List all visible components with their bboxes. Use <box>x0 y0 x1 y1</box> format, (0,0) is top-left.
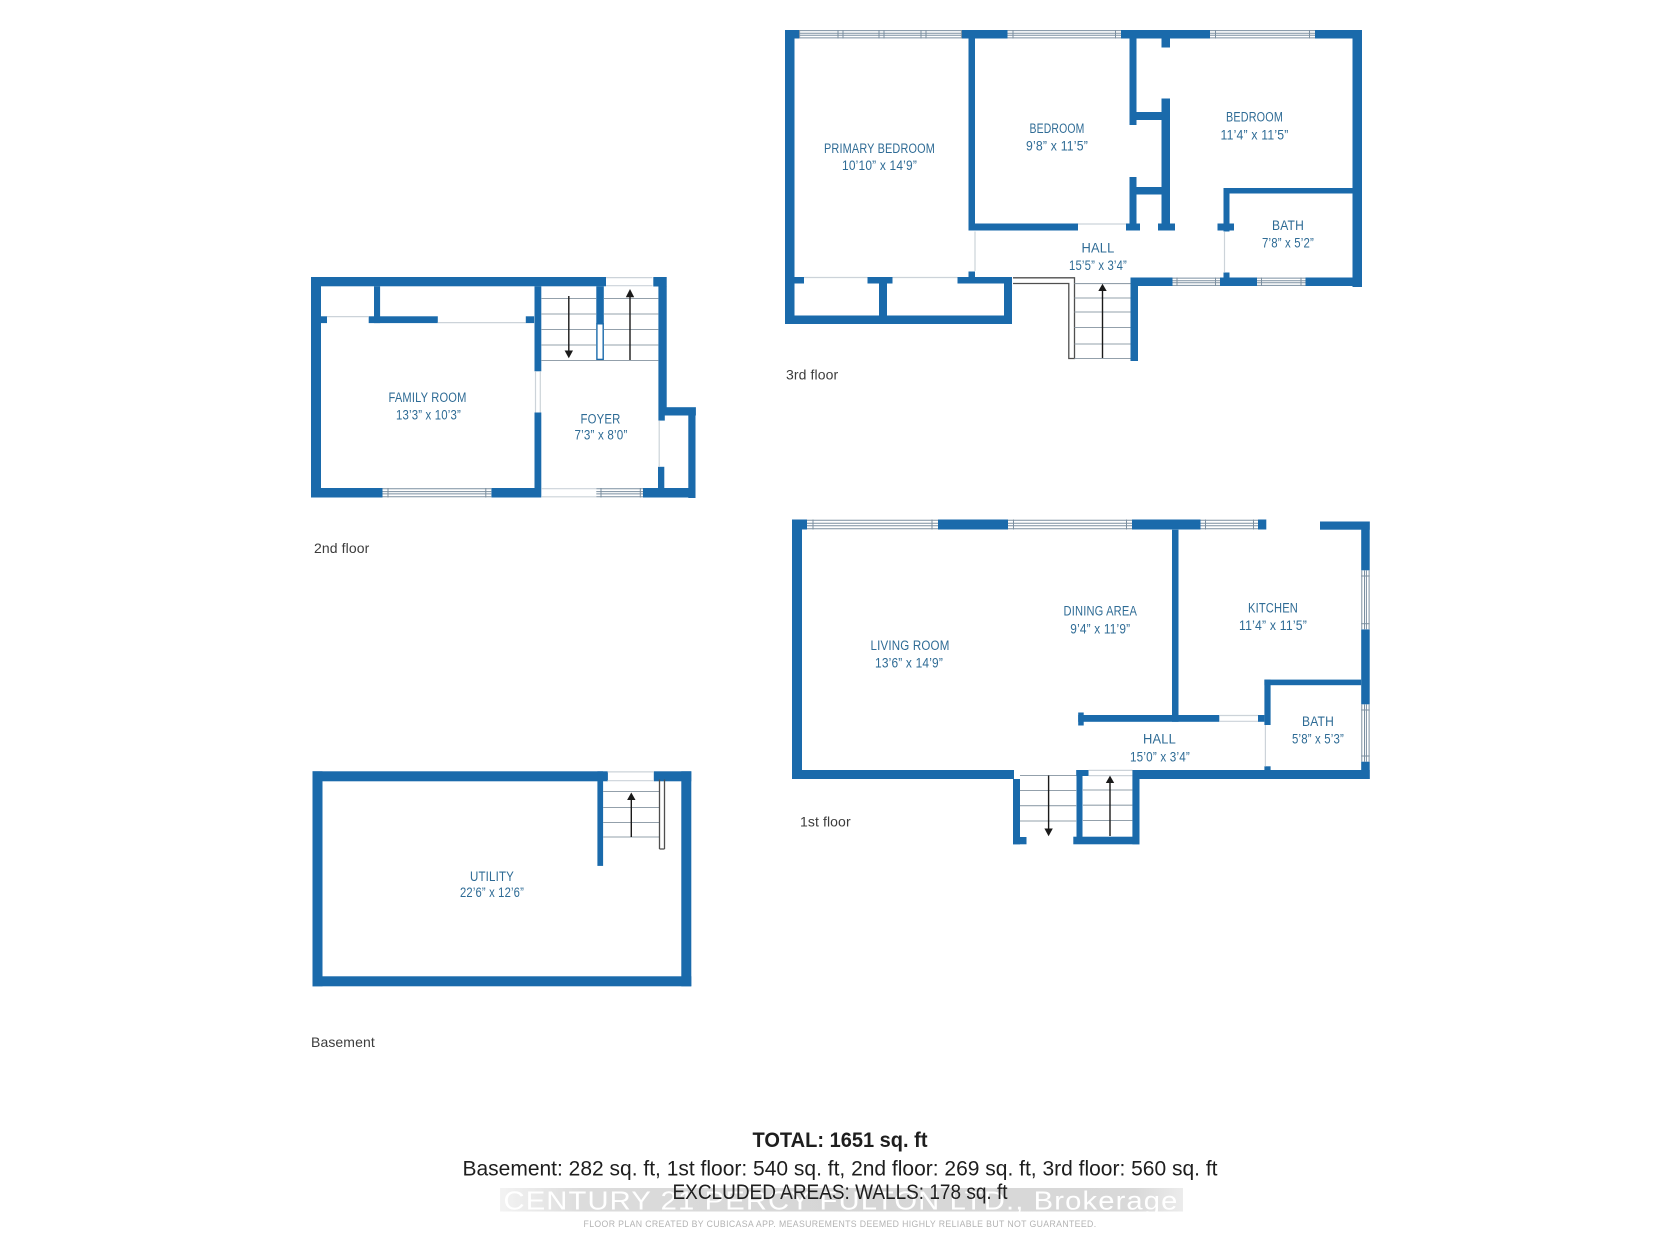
svg-text:UTILITY: UTILITY <box>470 869 514 884</box>
svg-text:22’6” x 12’6”: 22’6” x 12’6” <box>460 885 524 900</box>
svg-text:11’4” x 11’5”: 11’4” x 11’5” <box>1221 128 1289 143</box>
svg-text:EXCLUDED AREAS: WALLS: 178 sq.: EXCLUDED AREAS: WALLS: 178 sq. ft <box>673 1181 1008 1204</box>
svg-text:TOTAL: 1651 sq. ft: TOTAL: 1651 sq. ft <box>753 1129 928 1152</box>
svg-text:Basement: 282 sq. ft, 1st floo: Basement: 282 sq. ft, 1st floor: 540 sq.… <box>463 1158 1218 1181</box>
svg-text:KITCHEN: KITCHEN <box>1248 601 1298 616</box>
svg-text:BEDROOM: BEDROOM <box>1030 121 1085 136</box>
svg-text:BATH: BATH <box>1302 714 1334 729</box>
svg-text:PRIMARY BEDROOM: PRIMARY BEDROOM <box>824 141 935 156</box>
svg-text:BATH: BATH <box>1272 218 1304 233</box>
svg-text:15’5” x 3’4”: 15’5” x 3’4” <box>1069 258 1127 273</box>
svg-text:15’0” x 3’4”: 15’0” x 3’4” <box>1130 750 1190 765</box>
svg-text:11’4” x 11’5”: 11’4” x 11’5” <box>1239 618 1307 633</box>
svg-text:1st floor: 1st floor <box>800 814 851 830</box>
svg-text:FLOOR PLAN CREATED BY CUBICASA: FLOOR PLAN CREATED BY CUBICASA APP. MEAS… <box>584 1219 1097 1230</box>
svg-text:Basement: Basement <box>311 1034 375 1050</box>
svg-text:2nd floor: 2nd floor <box>314 540 370 556</box>
svg-text:FAMILY ROOM: FAMILY ROOM <box>389 390 467 405</box>
svg-text:7’8” x 5’2”: 7’8” x 5’2” <box>1262 236 1314 251</box>
svg-text:5’8” x 5’3”: 5’8” x 5’3” <box>1292 732 1344 747</box>
svg-text:FOYER: FOYER <box>581 412 621 427</box>
svg-text:3rd floor: 3rd floor <box>786 367 838 383</box>
svg-text:HALL: HALL <box>1082 241 1115 256</box>
svg-text:9’4” x 11’9”: 9’4” x 11’9” <box>1070 622 1130 637</box>
svg-text:10’10” x 14’9”: 10’10” x 14’9” <box>842 158 917 173</box>
svg-text:9’8” x 11’5”: 9’8” x 11’5” <box>1026 139 1088 154</box>
svg-text:13’6” x 14’9”: 13’6” x 14’9” <box>875 656 943 671</box>
svg-text:DINING AREA: DINING AREA <box>1064 604 1138 619</box>
svg-text:LIVING ROOM: LIVING ROOM <box>871 638 950 653</box>
svg-text:7’3” x 8’0”: 7’3” x 8’0” <box>575 428 628 443</box>
svg-text:HALL: HALL <box>1143 732 1176 747</box>
svg-text:13’3” x 10’3”: 13’3” x 10’3” <box>396 408 461 423</box>
svg-text:BEDROOM: BEDROOM <box>1226 110 1283 125</box>
